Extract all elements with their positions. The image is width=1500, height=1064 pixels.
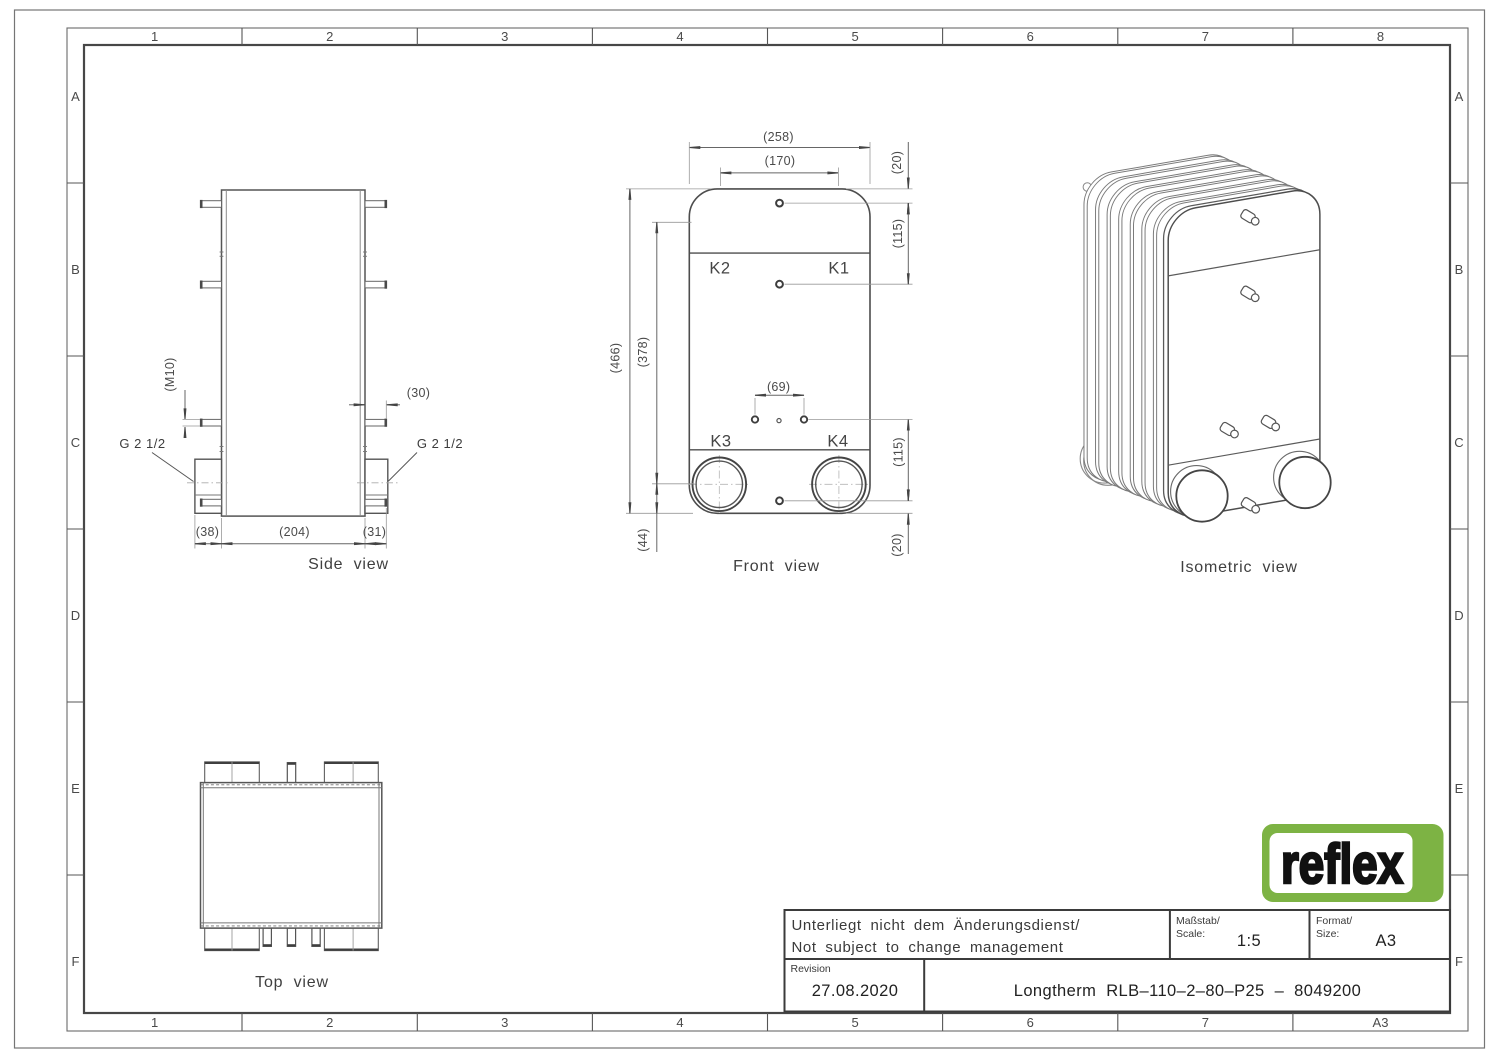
svg-text:Maßstab/: Maßstab/ <box>1176 915 1220 927</box>
svg-text:Not subject to change manageme: Not subject to change management <box>792 939 1064 956</box>
svg-text:3: 3 <box>501 29 508 44</box>
svg-text:(20): (20) <box>890 533 904 556</box>
svg-text:(38): (38) <box>196 525 219 539</box>
svg-text:A: A <box>71 89 80 104</box>
svg-text:Side view: Side view <box>308 556 389 573</box>
svg-text:5: 5 <box>851 1015 858 1030</box>
svg-text:K2: K2 <box>709 260 730 278</box>
svg-text:G 2 1/2: G 2 1/2 <box>119 436 165 451</box>
svg-text:Isometric view: Isometric view <box>1180 559 1298 576</box>
svg-text:1: 1 <box>151 1015 158 1030</box>
svg-text:(69): (69) <box>767 380 790 394</box>
svg-text:(30): (30) <box>407 386 430 400</box>
svg-text:Format/: Format/ <box>1316 915 1352 927</box>
svg-text:D: D <box>71 608 80 623</box>
svg-text:7: 7 <box>1202 29 1209 44</box>
svg-text:K4: K4 <box>827 433 848 451</box>
svg-text:F: F <box>1455 954 1463 969</box>
svg-text:Front view: Front view <box>733 558 820 575</box>
svg-text:3: 3 <box>501 1015 508 1030</box>
svg-text:5: 5 <box>851 29 858 44</box>
svg-text:1: 1 <box>151 29 158 44</box>
svg-text:C: C <box>71 435 80 450</box>
svg-text:(258): (258) <box>763 130 794 144</box>
svg-text:(31): (31) <box>363 525 386 539</box>
svg-text:K3: K3 <box>710 433 731 451</box>
svg-text:Size:: Size: <box>1316 928 1339 940</box>
svg-text:Longtherm RLB–110–2–80–P25 – 8: Longtherm RLB–110–2–80–P25 – 8049200 <box>1014 982 1361 1000</box>
svg-text:F: F <box>72 954 80 969</box>
svg-text:K1: K1 <box>828 260 849 278</box>
svg-text:A3: A3 <box>1373 1015 1389 1030</box>
svg-text:(466): (466) <box>609 343 623 374</box>
svg-text:B: B <box>1455 262 1464 277</box>
svg-text:Scale:: Scale: <box>1176 928 1205 940</box>
svg-text:(115): (115) <box>891 219 905 249</box>
svg-text:6: 6 <box>1027 29 1034 44</box>
svg-text:A3: A3 <box>1376 932 1397 950</box>
svg-text:A: A <box>1455 89 1464 104</box>
svg-text:7: 7 <box>1202 1015 1209 1030</box>
svg-text:(170): (170) <box>765 154 796 168</box>
svg-text:(44): (44) <box>636 528 650 551</box>
svg-text:reflex: reflex <box>1281 832 1403 895</box>
svg-text:B: B <box>71 262 80 277</box>
svg-text:Unterliegt nicht dem Änderungs: Unterliegt nicht dem Änderungsdienst/ <box>792 917 1081 934</box>
svg-text:8: 8 <box>1377 29 1384 44</box>
svg-text:G 2 1/2: G 2 1/2 <box>417 436 463 451</box>
svg-text:(378): (378) <box>636 337 650 368</box>
svg-text:4: 4 <box>676 1015 683 1030</box>
svg-text:(115): (115) <box>892 437 906 467</box>
svg-text:2: 2 <box>326 1015 333 1030</box>
svg-text:(M10): (M10) <box>163 357 177 391</box>
svg-text:4: 4 <box>676 29 683 44</box>
svg-text:Revision: Revision <box>791 963 831 975</box>
svg-text:(204): (204) <box>279 525 310 539</box>
svg-text:6: 6 <box>1027 1015 1034 1030</box>
svg-text:Top view: Top view <box>255 974 329 991</box>
svg-text:D: D <box>1454 608 1463 623</box>
svg-text:E: E <box>71 781 80 796</box>
svg-text:27.08.2020: 27.08.2020 <box>812 982 899 1000</box>
svg-text:2: 2 <box>326 29 333 44</box>
svg-text:1:5: 1:5 <box>1237 932 1261 950</box>
svg-text:E: E <box>1455 781 1464 796</box>
svg-text:(20): (20) <box>890 151 904 174</box>
svg-text:C: C <box>1454 435 1463 450</box>
